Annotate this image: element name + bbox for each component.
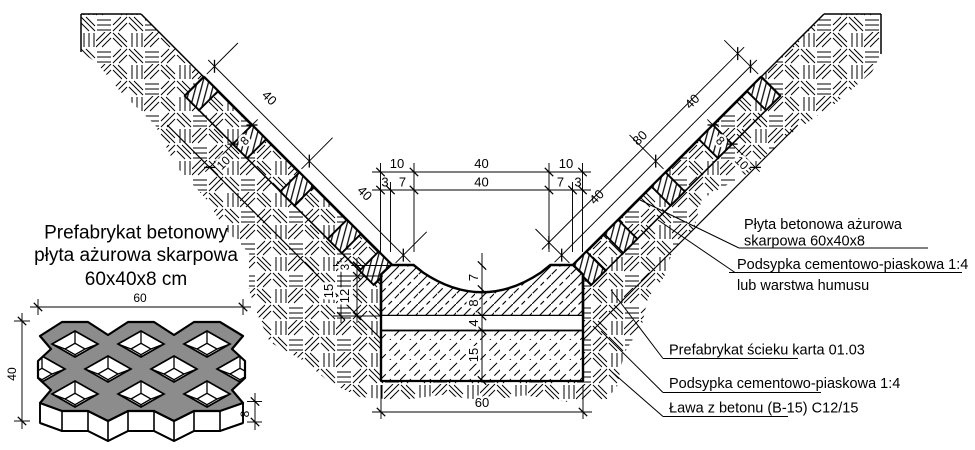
svg-text:60: 60 [475,395,489,410]
svg-text:7: 7 [399,175,406,190]
svg-text:7: 7 [466,274,481,281]
svg-text:10: 10 [559,156,573,171]
svg-text:Prefabrykat ścieku karta 01.03: Prefabrykat ścieku karta 01.03 [669,343,865,359]
svg-text:Płyta betonowa ażurowa: Płyta betonowa ażurowa [744,217,903,233]
svg-text:60x40x8 cm: 60x40x8 cm [85,269,187,290]
svg-text:8: 8 [238,410,252,417]
svg-text:60: 60 [133,291,147,305]
svg-text:15: 15 [466,348,481,362]
svg-text:40: 40 [474,175,488,190]
svg-text:skarpowa 60x40x8: skarpowa 60x40x8 [744,234,865,250]
svg-text:15: 15 [321,284,336,298]
svg-text:Podsypka cementowo-piaskowa 1:: Podsypka cementowo-piaskowa 1:4 [669,376,900,392]
svg-text:3: 3 [381,175,388,190]
svg-text:12: 12 [337,289,352,303]
svg-text:3: 3 [574,175,581,190]
svg-text:40: 40 [5,367,19,381]
svg-text:Prefabrykat betonowy: Prefabrykat betonowy [44,223,228,244]
svg-text:3: 3 [340,264,352,270]
svg-text:7: 7 [557,175,564,190]
svg-text:8: 8 [466,299,481,306]
svg-text:10: 10 [390,156,404,171]
svg-text:Ława z betonu (B-15) C12/15: Ława z betonu (B-15) C12/15 [669,401,858,417]
svg-text:40: 40 [474,156,488,171]
svg-text:Podsypka cementowo-piaskowa 1:: Podsypka cementowo-piaskowa 1:4 [737,257,968,273]
svg-text:płyta ażurowa skarpowa: płyta ażurowa skarpowa [34,245,238,266]
svg-text:lub warstwa humusu: lub warstwa humusu [737,278,869,294]
svg-text:4: 4 [466,319,481,326]
